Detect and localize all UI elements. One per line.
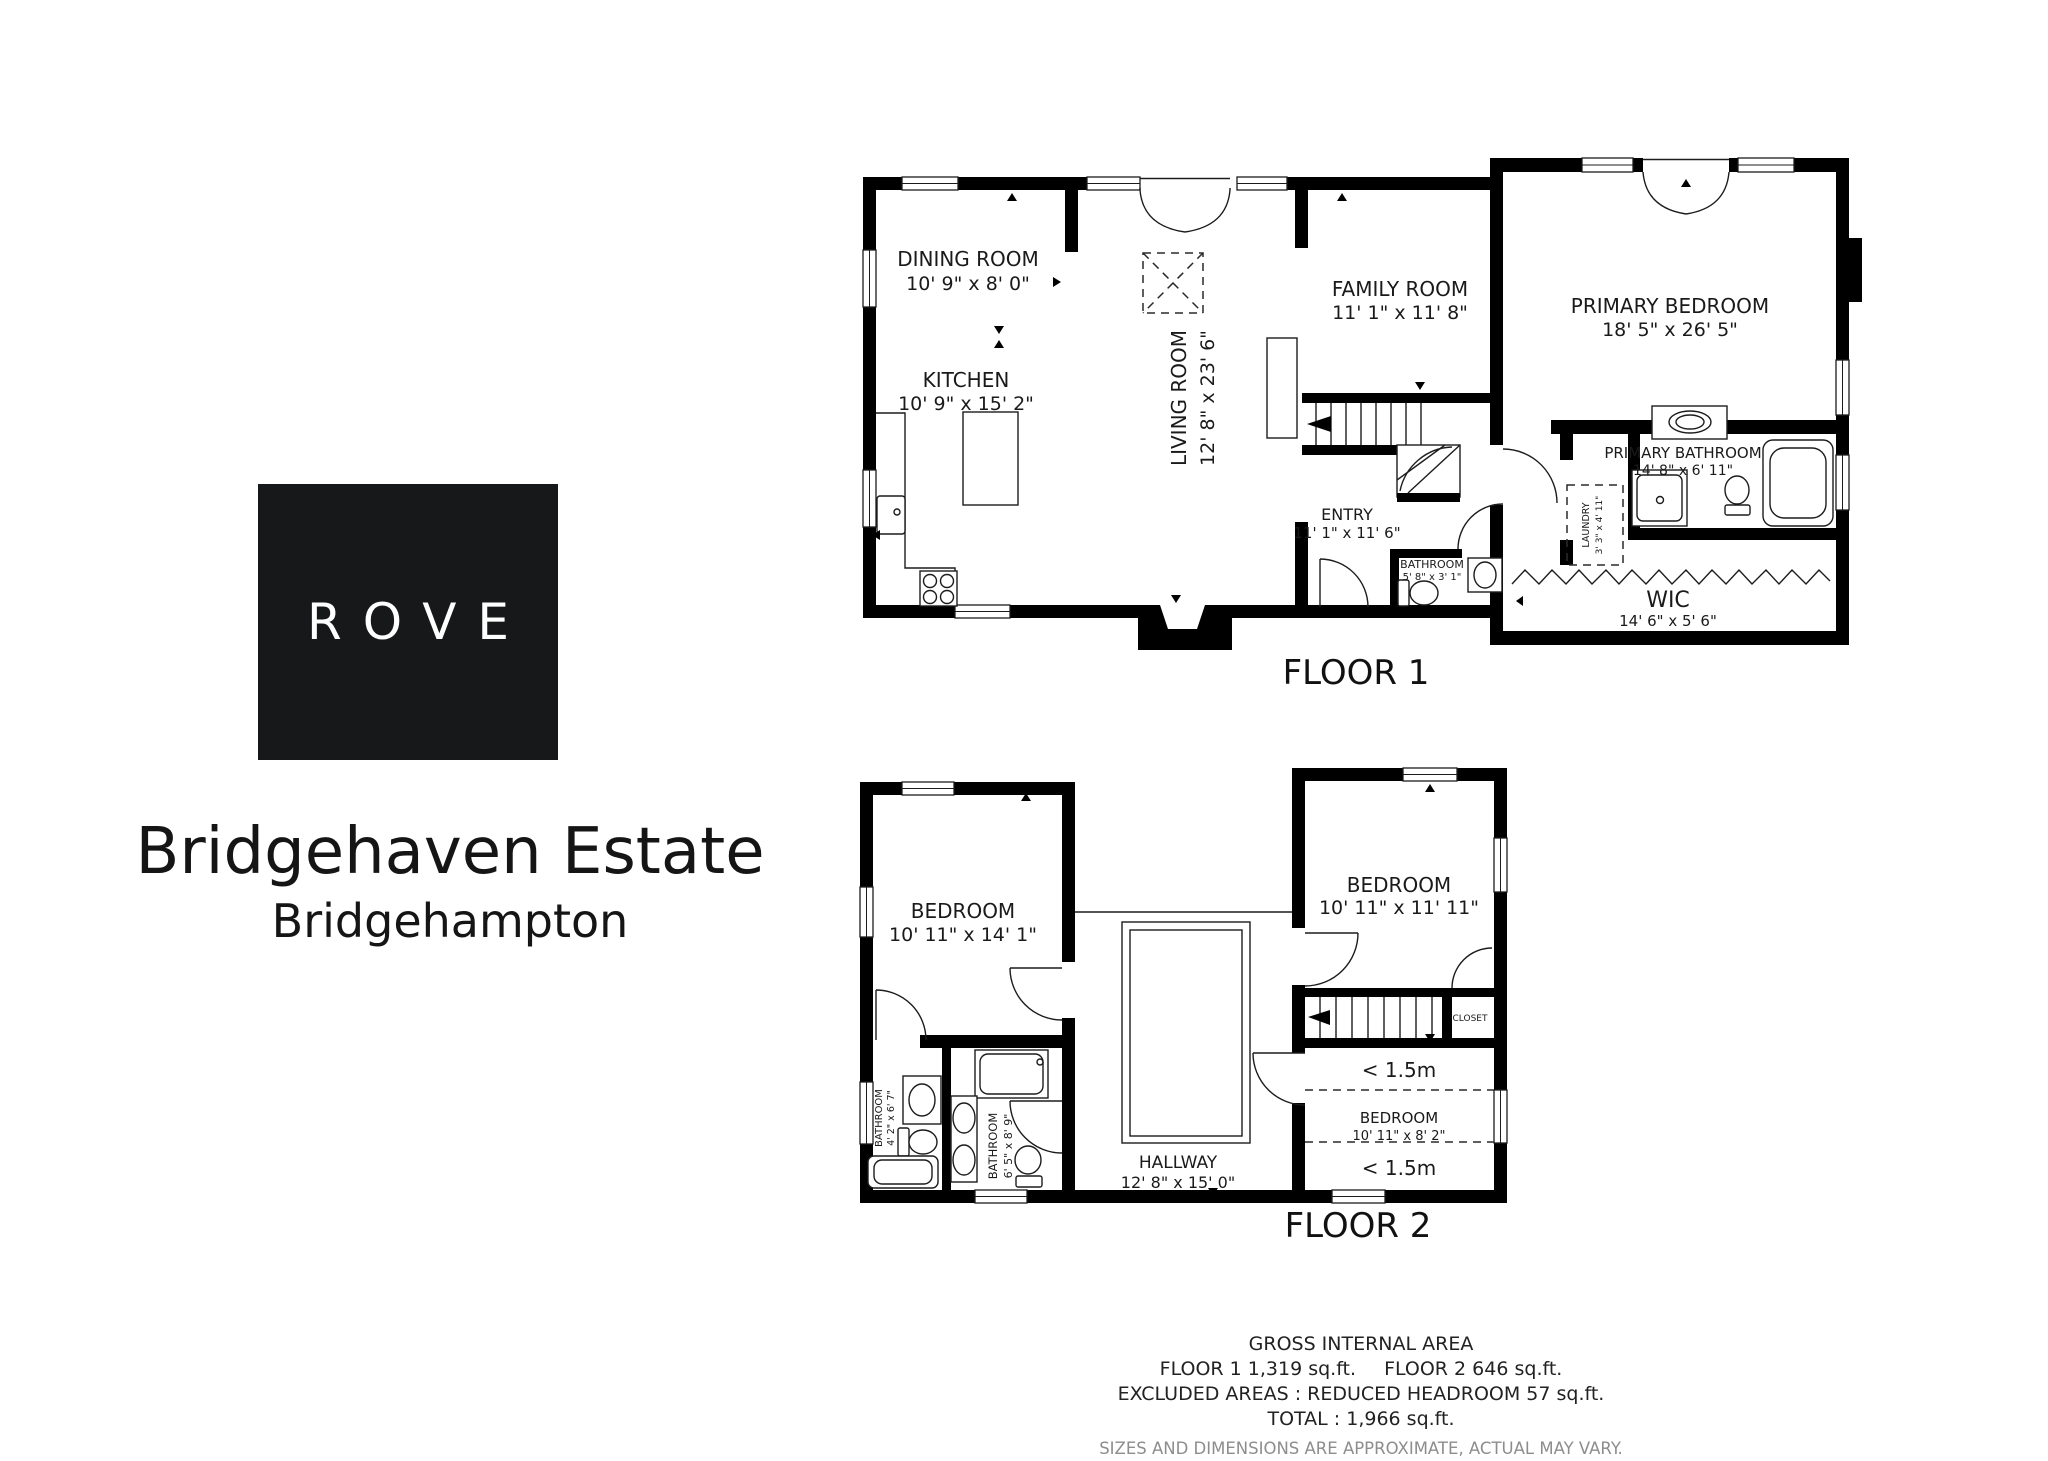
area-summary: GROSS INTERNAL AREA FLOOR 1 1,319 sq.ft.… xyxy=(861,1332,1861,1461)
bathroom-left-dims: 4' 2" x 6' 7" xyxy=(886,1090,897,1146)
floor2-area: FLOOR 2 646 sq.ft. xyxy=(1384,1358,1562,1380)
floor1-title: FLOOR 1 xyxy=(1283,653,1430,693)
bedroom-left-label: BEDROOM xyxy=(911,899,1015,923)
floor1-area: FLOOR 1 1,319 sq.ft. xyxy=(1160,1358,1356,1380)
dining-room-dims: 10' 9" x 8' 0" xyxy=(906,273,1030,295)
bathroom-right-dims: 6' 5" x 8' 9" xyxy=(1002,1114,1015,1179)
headroom-label-2: < 1.5m xyxy=(1362,1156,1436,1180)
laundry-label: LAUNDRY xyxy=(1581,502,1592,547)
primary-suite-door-arc xyxy=(1503,449,1557,503)
floor2-plan: BEDROOM 10' 11" x 14' 1" BEDROOM 10' 11"… xyxy=(840,750,1530,1250)
page-subtitle: Bridgehampton xyxy=(40,892,860,950)
kitchen-dims: 10' 9" x 15' 2" xyxy=(898,393,1034,415)
bedroom-small-door-arc xyxy=(1253,1053,1305,1105)
gross-internal-area-heading: GROSS INTERNAL AREA xyxy=(861,1332,1861,1357)
bedroom-right-closet-arc xyxy=(1452,948,1492,988)
skylight xyxy=(1143,253,1203,313)
bathroom-dims: 5' 8" x 3' 1" xyxy=(1403,572,1462,583)
wic-dims: 14' 6" x 5' 6" xyxy=(1619,612,1717,630)
floor1-labels: DINING ROOM 10' 9" x 8' 0" KITCHEN 10' 9… xyxy=(897,247,1769,693)
toilet-right xyxy=(1015,1146,1041,1174)
bath-sink xyxy=(1468,558,1502,592)
toilet-left-tank xyxy=(898,1128,909,1156)
floor1-plan: DINING ROOM 10' 9" x 8' 0" KITCHEN 10' 9… xyxy=(800,140,1910,700)
floorplan-page: { "logo": { "text": "ROVE" }, "title": "… xyxy=(0,0,2048,1448)
hallway-dims: 12' 8" x 15' 0" xyxy=(1121,1173,1235,1192)
wic-hanging-rail xyxy=(1512,570,1830,584)
laundry-dims: 3' 3" x 4' 11" xyxy=(1595,496,1605,555)
floor1-stairs xyxy=(1267,338,1490,502)
entry-door-arc xyxy=(1320,559,1368,607)
french-door-right-leaf xyxy=(1185,188,1230,232)
floor-areas-line: FLOOR 1 1,319 sq.ft.FLOOR 2 646 sq.ft. xyxy=(861,1357,1861,1382)
floor2-title: FLOOR 2 xyxy=(1285,1206,1432,1246)
bedroom-right-dims: 10' 11" x 11' 11" xyxy=(1319,897,1479,919)
bathroom-left-door-arc xyxy=(876,990,926,1040)
primary-bathroom-dims: 14' 8" x 6' 11" xyxy=(1633,463,1733,479)
wic-label: WIC xyxy=(1646,588,1690,613)
stairs-down-arrow xyxy=(1308,1010,1330,1025)
living-room-label: LIVING ROOM xyxy=(1167,330,1191,466)
family-room-dims: 11' 1" x 11' 8" xyxy=(1332,302,1468,324)
bedroom-left-dims: 10' 11" x 14' 1" xyxy=(889,924,1037,946)
chimney xyxy=(1849,238,1862,302)
bathroom-right-door-arc xyxy=(1010,1101,1062,1153)
floor1-windows xyxy=(863,158,1849,618)
hallway-label: HALLWAY xyxy=(1139,1153,1218,1173)
dining-room-label: DINING ROOM xyxy=(897,247,1039,271)
closet-label: CLOSET xyxy=(1453,1014,1488,1024)
french-door-left-leaf xyxy=(1140,188,1185,232)
primary-toilet xyxy=(1725,476,1749,504)
entry-label: ENTRY xyxy=(1321,505,1373,524)
entry-dims: 11' 1" x 11' 6" xyxy=(1293,524,1400,542)
rove-logo: ROVE xyxy=(258,484,558,760)
living-room-dims: 12' 8" x 23' 6" xyxy=(1197,330,1219,466)
toilet-left xyxy=(909,1130,937,1154)
primary-bedroom-dims: 18' 5" x 26' 5" xyxy=(1602,319,1738,341)
bedroom-small-label: BEDROOM xyxy=(1360,1109,1438,1127)
toilet xyxy=(1410,581,1438,605)
toilet-tank xyxy=(1398,580,1409,606)
bedroom-right-door-arc xyxy=(1305,933,1358,986)
bathroom-left-label: BATHROOM xyxy=(874,1089,885,1147)
headroom-label-1: < 1.5m xyxy=(1362,1058,1436,1082)
disclaimer-line: SIZES AND DIMENSIONS ARE APPROXIMATE, AC… xyxy=(861,1436,1861,1461)
bathroom-label: BATHROOM xyxy=(1400,558,1464,571)
kitchen-label: KITCHEN xyxy=(923,368,1010,392)
kitchen-island xyxy=(963,412,1018,505)
family-room-label: FAMILY ROOM xyxy=(1332,277,1468,301)
bedroom-small-dims: 10' 11" x 8' 2" xyxy=(1353,1129,1446,1144)
kitchen-sink xyxy=(877,496,905,534)
bathroom-right-label: BATHROOM xyxy=(986,1113,1000,1180)
primary-bedroom-label: PRIMARY BEDROOM xyxy=(1571,294,1769,318)
total-area-line: TOTAL : 1,966 sq.ft. xyxy=(861,1407,1861,1432)
floor2-stairwell-void xyxy=(1075,912,1292,1143)
listing-title-block: Bridgehaven Estate Bridgehampton xyxy=(40,812,860,950)
rove-logo-text: ROVE xyxy=(286,593,530,651)
shower-right xyxy=(975,1050,1048,1098)
excluded-areas-line: EXCLUDED AREAS : REDUCED HEADROOM 57 sq.… xyxy=(861,1382,1861,1407)
stair-nook xyxy=(1267,338,1297,438)
page-title: Bridgehaven Estate xyxy=(40,812,860,892)
primary-bathroom-label: PRIMARY BATHROOM xyxy=(1604,444,1761,462)
bedroom-right-label: BEDROOM xyxy=(1347,873,1451,897)
bedroom-left-door-arc xyxy=(1010,968,1062,1020)
stairs-up-arrow xyxy=(1307,416,1331,432)
